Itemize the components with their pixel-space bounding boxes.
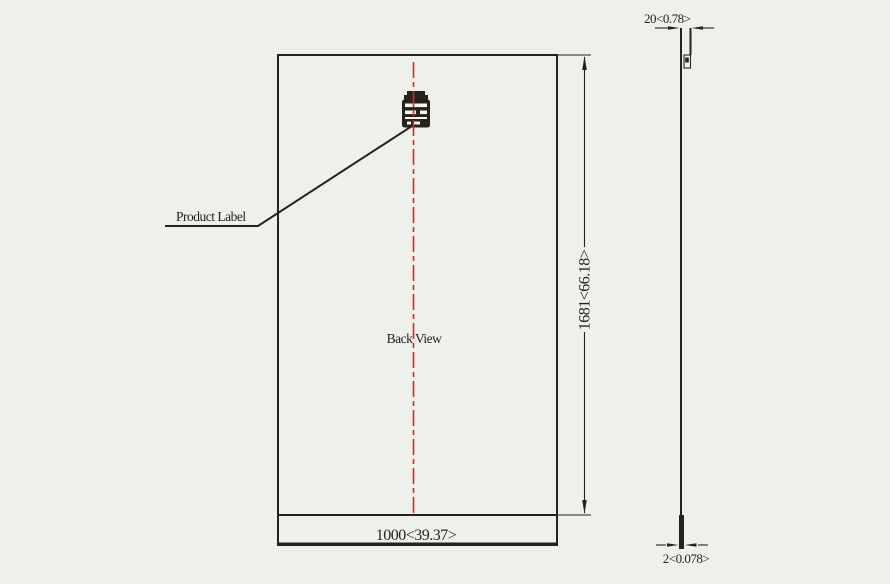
- label-stripe-3: [420, 111, 427, 115]
- back-view-label: Back View: [387, 331, 443, 346]
- product-label-text: Product Label: [176, 209, 246, 224]
- side-view-drawing: 20<0.78> 2<0.078>: [644, 11, 714, 566]
- frame-width-dim-text: 20<0.78>: [644, 11, 691, 26]
- label-mark-1: [407, 122, 411, 125]
- label-stripe-1: [405, 104, 427, 108]
- height-arrow-up: [582, 56, 587, 70]
- laminate-thick-segment: [679, 515, 684, 549]
- height-arrow-down: [582, 500, 587, 514]
- product-label-icon: [402, 91, 430, 128]
- technical-drawing-page: Product Label Back View 1681<66.18> 1000…: [0, 0, 890, 584]
- height-dim-text: 1681<66.18>: [577, 249, 594, 330]
- frame-arrow-left: [668, 26, 680, 30]
- panel-drawing-svg: Product Label Back View 1681<66.18> 1000…: [0, 0, 890, 584]
- height-dimension: 1681<66.18>: [557, 55, 594, 515]
- side-profile-clip-fill: [685, 58, 689, 63]
- back-view-drawing: Product Label Back View 1681<66.18> 1000…: [165, 55, 594, 545]
- width-dim-text: 1000<39.37>: [376, 527, 457, 544]
- laminate-arrow-left: [667, 543, 679, 547]
- label-stripe-2: [405, 111, 416, 115]
- label-stripe-4: [405, 117, 427, 119]
- label-cap-base: [404, 95, 428, 100]
- frame-arrow-right: [692, 26, 704, 30]
- laminate-dim-text: 2<0.078>: [663, 551, 710, 566]
- panel-outline: [278, 55, 557, 545]
- laminate-arrow-right: [685, 543, 697, 547]
